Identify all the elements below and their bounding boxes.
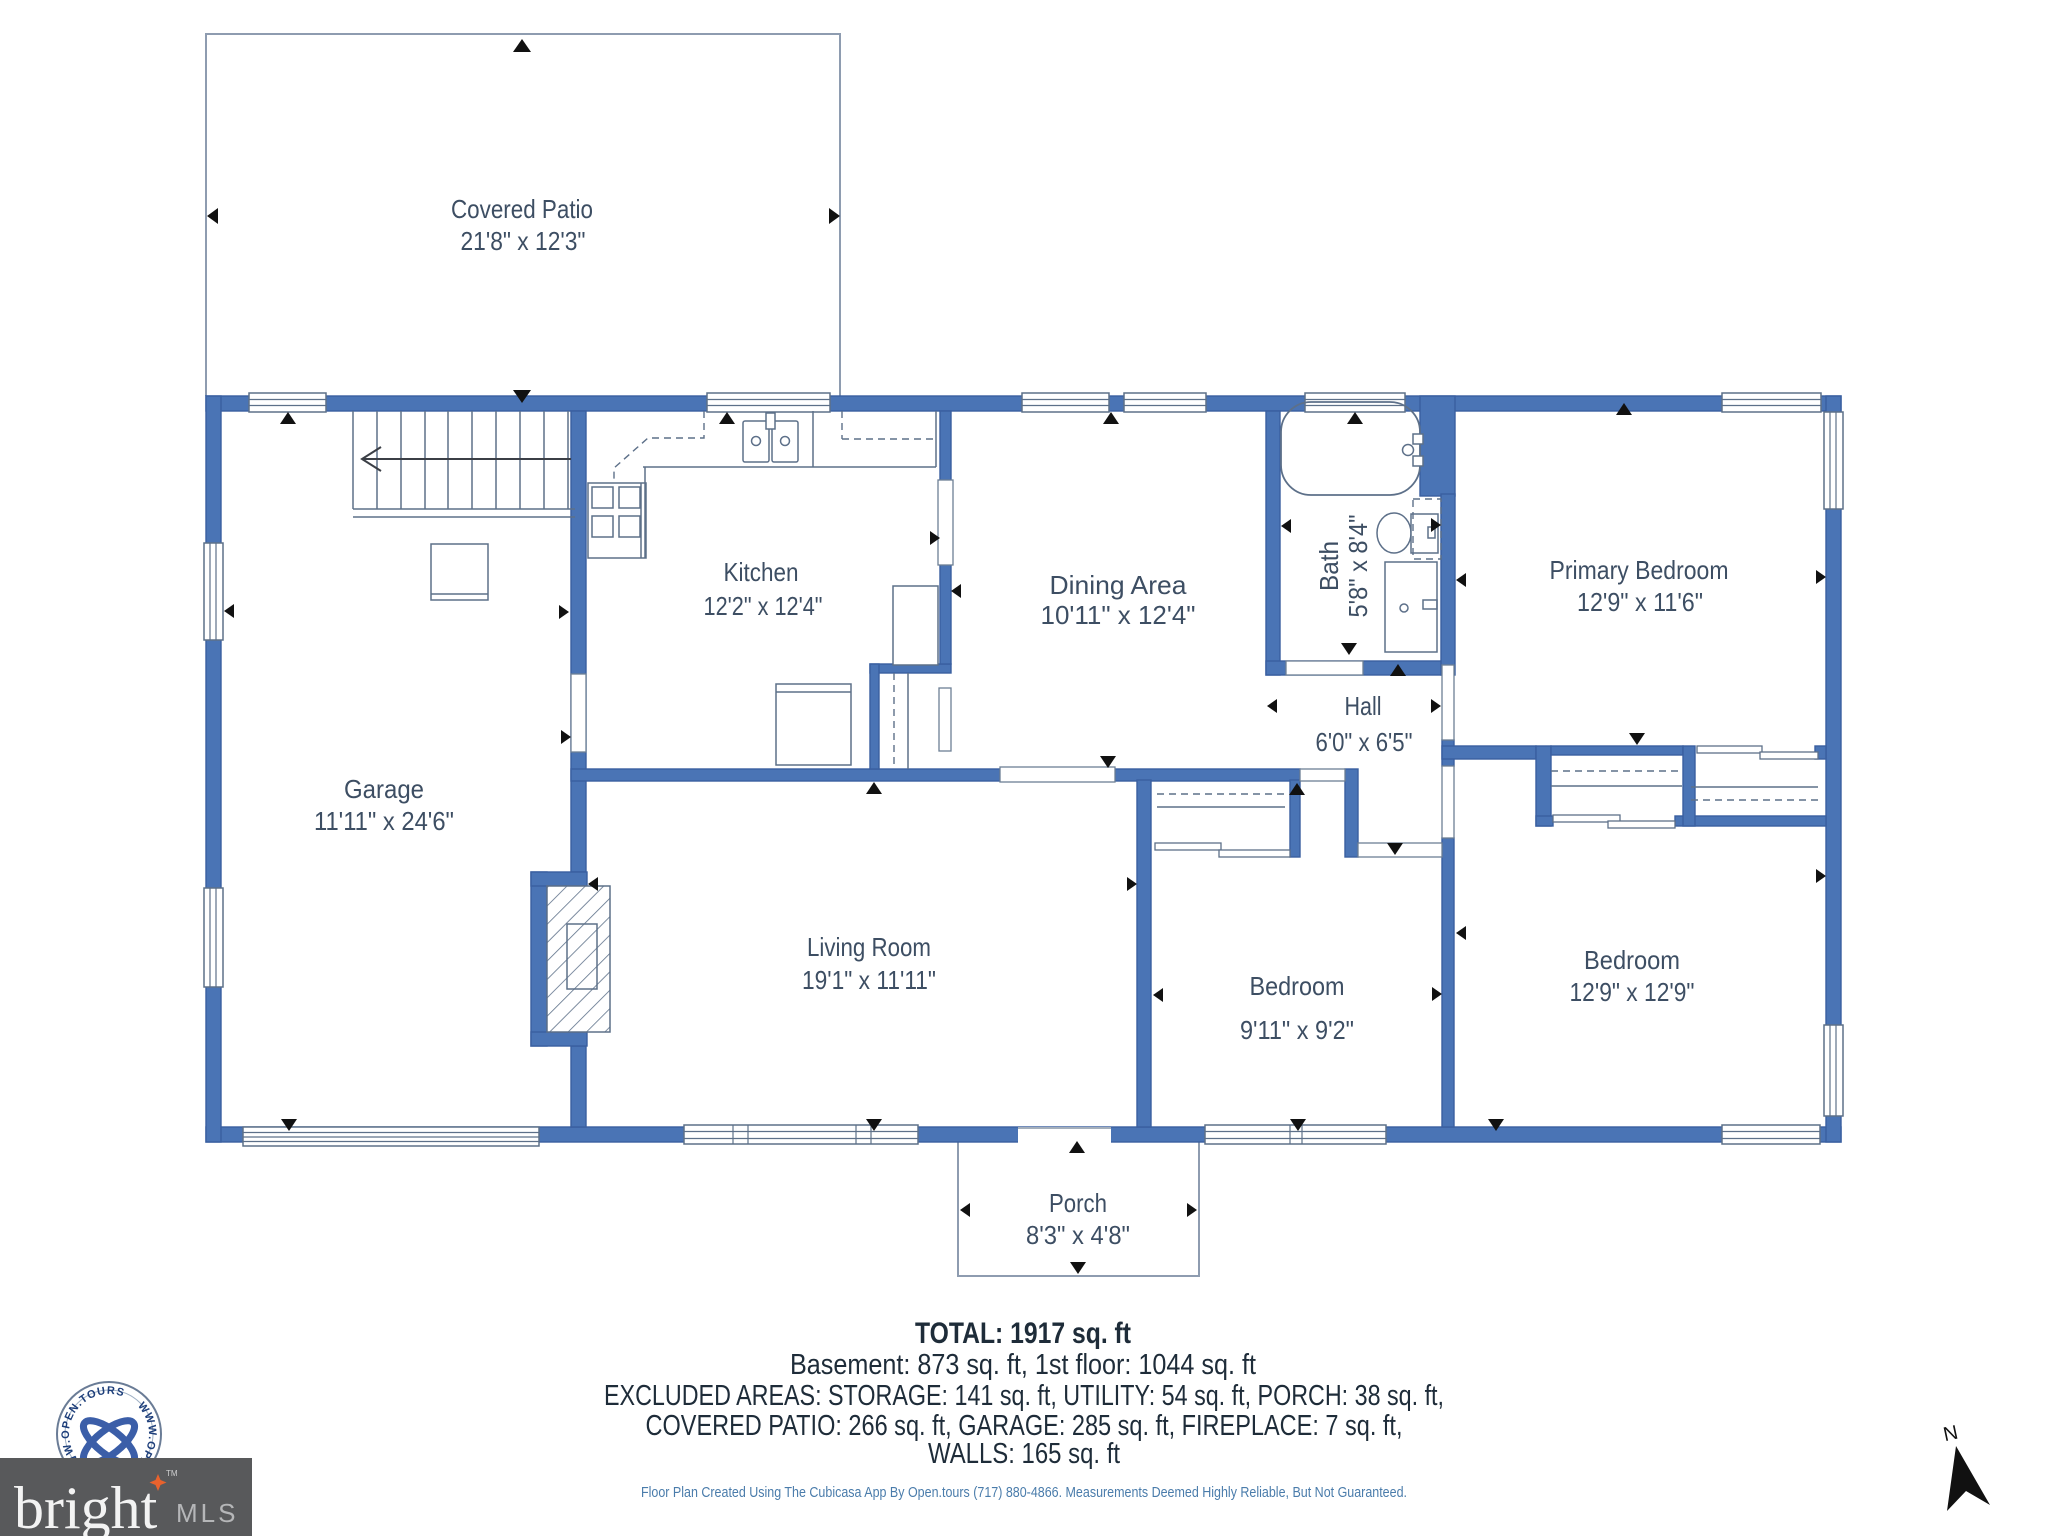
svg-text:Bedroom: Bedroom xyxy=(1250,971,1345,1001)
svg-text:12'2" x 12'4": 12'2" x 12'4" xyxy=(704,591,823,621)
svg-text:12'9" x 12'9": 12'9" x 12'9" xyxy=(1570,977,1695,1007)
svg-text:Porch: Porch xyxy=(1049,1188,1107,1218)
svg-text:Dining Area: Dining Area xyxy=(1050,570,1188,600)
svg-text:bright: bright xyxy=(14,1475,158,1536)
svg-text:TOTAL: 1917 sq. ft: TOTAL: 1917 sq. ft xyxy=(915,1317,1131,1350)
svg-text:8'3" x 4'8": 8'3" x 4'8" xyxy=(1026,1220,1130,1250)
svg-text:Floor Plan Created Using The C: Floor Plan Created Using The Cubicasa Ap… xyxy=(641,1485,1407,1501)
svg-text:21'8" x 12'3": 21'8" x 12'3" xyxy=(461,226,586,256)
svg-text:TM: TM xyxy=(166,1469,178,1478)
svg-text:Basement: 873 sq. ft, 1st floo: Basement: 873 sq. ft, 1st floor: 1044 sq… xyxy=(790,1349,1256,1381)
svg-text:Garage: Garage xyxy=(344,774,424,804)
svg-text:10'11" x 12'4": 10'11" x 12'4" xyxy=(1041,600,1196,630)
svg-text:11'11" x 24'6": 11'11" x 24'6" xyxy=(314,806,454,836)
svg-text:Hall: Hall xyxy=(1345,691,1382,721)
svg-text:WALLS: 165 sq. ft: WALLS: 165 sq. ft xyxy=(928,1438,1120,1470)
svg-text:12'9" x 11'6": 12'9" x 11'6" xyxy=(1577,587,1703,617)
svg-text:5'8" x 8'4": 5'8" x 8'4" xyxy=(1343,515,1373,618)
svg-text:Primary Bedroom: Primary Bedroom xyxy=(1550,555,1729,585)
svg-text:EXCLUDED AREAS: STORAGE: 141 s: EXCLUDED AREAS: STORAGE: 141 sq. ft, UTI… xyxy=(604,1380,1444,1412)
svg-text:19'1" x 11'11": 19'1" x 11'11" xyxy=(802,965,936,995)
svg-text:9'11" x 9'2": 9'11" x 9'2" xyxy=(1240,1015,1354,1045)
svg-text:MLS: MLS xyxy=(176,1498,238,1528)
svg-text:WWW.OPEN.TOURS WWW.OPEN.TOU: WWW.OPEN.TOURS WWW.OPEN.TOURS xyxy=(0,0,158,1483)
svg-text:Living Room: Living Room xyxy=(807,932,931,962)
svg-text:Kitchen: Kitchen xyxy=(724,557,799,587)
svg-text:Bedroom: Bedroom xyxy=(1584,945,1680,975)
svg-text:6'0" x 6'5": 6'0" x 6'5" xyxy=(1316,727,1413,757)
svg-text:N: N xyxy=(1941,1422,1960,1447)
svg-text:Bath: Bath xyxy=(1314,541,1344,591)
svg-text:Covered Patio: Covered Patio xyxy=(451,194,593,224)
